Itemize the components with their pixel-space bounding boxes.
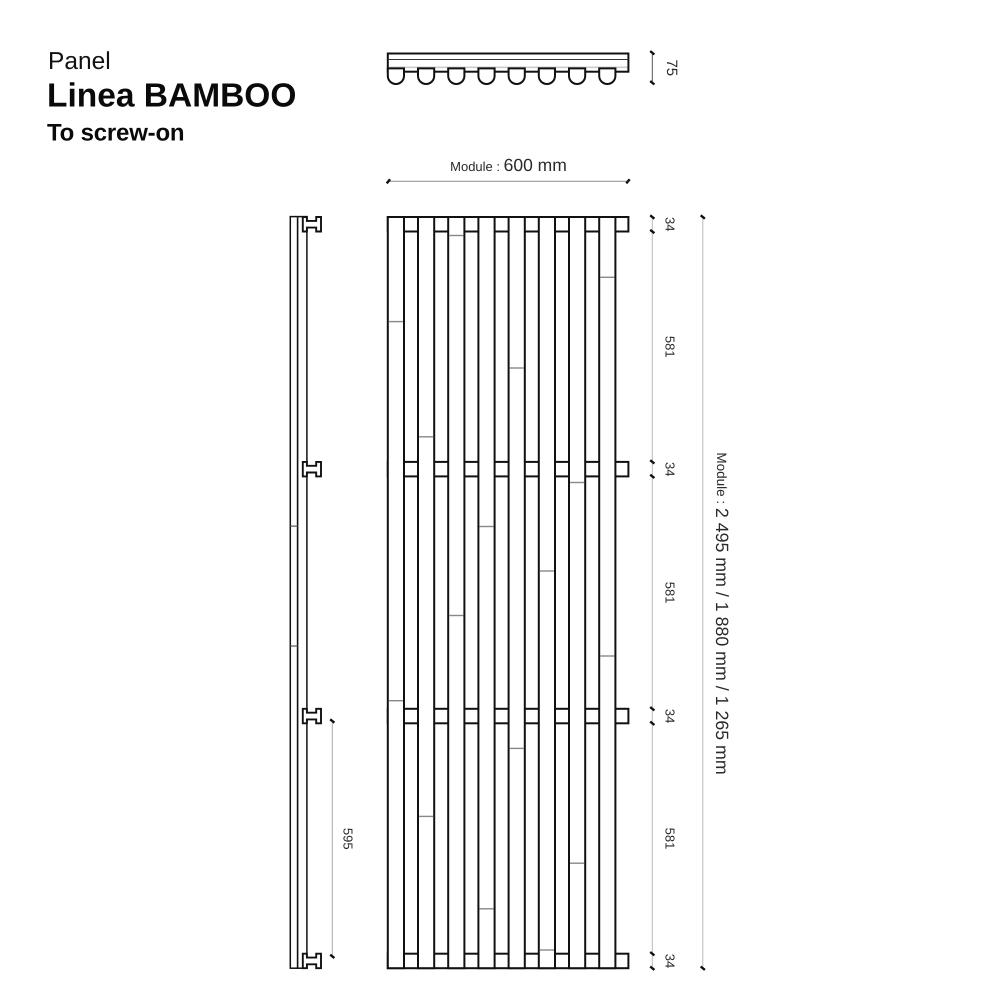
svg-text:Linea BAMBOO: Linea BAMBOO bbox=[47, 78, 296, 115]
svg-text:34: 34 bbox=[663, 462, 678, 476]
svg-text:Panel: Panel bbox=[48, 48, 111, 75]
svg-text:Module : 2 495 mm / 1 880 mm /: Module : 2 495 mm / 1 880 mm / 1 265 mm bbox=[712, 452, 732, 774]
svg-text:581: 581 bbox=[663, 582, 678, 604]
svg-text:595: 595 bbox=[340, 828, 355, 850]
svg-text:34: 34 bbox=[663, 709, 678, 723]
svg-text:75: 75 bbox=[663, 59, 680, 76]
svg-text:581: 581 bbox=[663, 336, 678, 358]
svg-text:To screw-on: To screw-on bbox=[47, 120, 184, 147]
svg-text:34: 34 bbox=[663, 954, 678, 968]
svg-text:34: 34 bbox=[663, 217, 678, 231]
svg-text:581: 581 bbox=[663, 828, 678, 850]
